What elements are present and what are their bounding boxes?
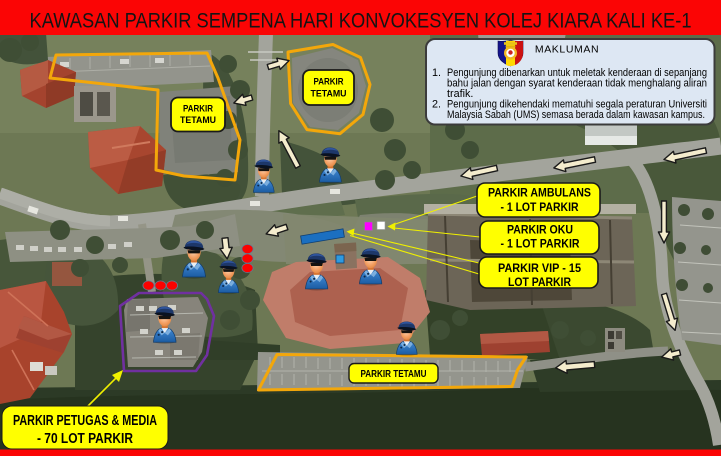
svg-text:- 1 LOT PARKIR: - 1 LOT PARKIR (501, 237, 580, 251)
svg-text:MAKLUMAN: MAKLUMAN (535, 44, 599, 56)
svg-text:PARKIR PETUGAS & MEDIA: PARKIR PETUGAS & MEDIA (13, 413, 157, 429)
svg-text:PARKIR VIP - 15: PARKIR VIP - 15 (498, 261, 581, 275)
svg-text:- 70 LOT PARKIR: - 70 LOT PARKIR (37, 431, 133, 447)
svg-text:TETAMU: TETAMU (180, 115, 216, 126)
svg-text:PARKIR: PARKIR (183, 104, 213, 115)
svg-text:LOT PARKIR: LOT PARKIR (508, 275, 571, 289)
svg-text:TETAMU: TETAMU (311, 89, 347, 100)
svg-text:PARKIR: PARKIR (314, 77, 344, 88)
svg-text:PARKIR TETAMU: PARKIR TETAMU (361, 369, 427, 380)
svg-text:1.: 1. (432, 67, 441, 79)
svg-text:bahu jalan dengan syarat kende: bahu jalan dengan syarat kenderaan tidak… (447, 78, 707, 90)
svg-text:KAWASAN PARKIR SEMPENA HARI KO: KAWASAN PARKIR SEMPENA HARI KONVOKESYEN … (30, 10, 692, 33)
svg-text:PARKIR OKU: PARKIR OKU (507, 223, 573, 237)
svg-text:2.: 2. (432, 99, 441, 111)
svg-text:Malaysia Sabah (UMS) semasa be: Malaysia Sabah (UMS) semasa berada dalam… (447, 109, 705, 121)
svg-text:PARKIR AMBULANS: PARKIR AMBULANS (488, 186, 591, 200)
svg-text:- 1 LOT PARKIR: - 1 LOT PARKIR (501, 200, 579, 214)
